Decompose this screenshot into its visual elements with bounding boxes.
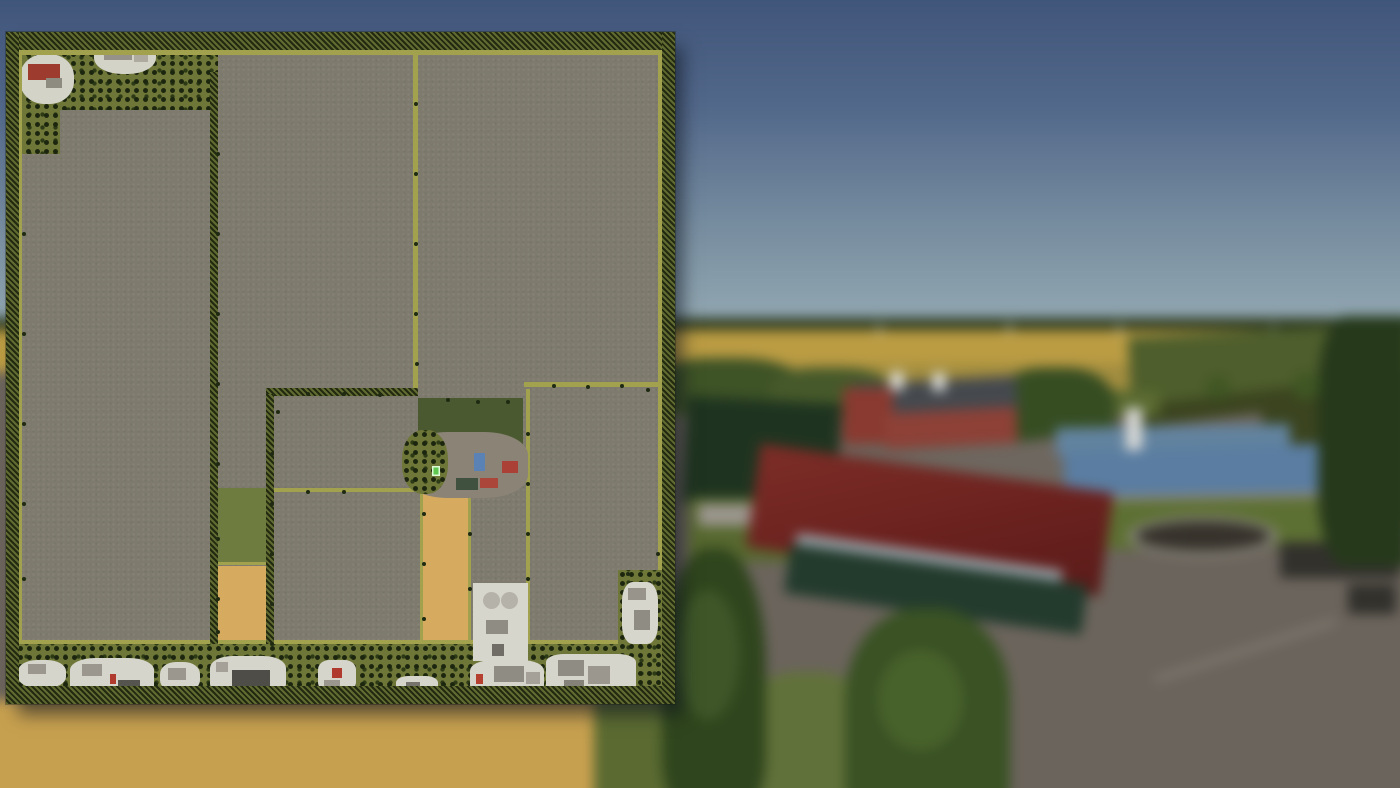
map-tree-dot <box>378 393 382 397</box>
map-tree-dot <box>414 102 418 106</box>
barn-side-wall <box>884 407 1018 450</box>
map-tree-dot <box>414 172 418 176</box>
map-farmyard-marker <box>432 466 440 476</box>
map-silo-yard-shed <box>486 620 508 634</box>
map-silo-1 <box>483 592 500 609</box>
minimap-panel <box>6 32 675 704</box>
map-tree-dot <box>270 552 274 556</box>
wind-turbine-3 <box>1118 324 1121 334</box>
map-tree-dot <box>422 617 426 621</box>
map-tree-dot <box>342 490 346 494</box>
map-tree-dot <box>216 152 220 156</box>
map-margin-field-bc <box>413 50 418 388</box>
map-bottom-yard-7-shed <box>494 666 524 682</box>
map-margin-center-right <box>468 492 471 642</box>
map-hedge-ring-right <box>662 32 675 704</box>
map-tree-dot <box>216 382 220 386</box>
map-bottom-yard-8-shed <box>558 660 584 676</box>
map-tree-dot <box>414 312 418 316</box>
map-tree-dot <box>22 232 26 236</box>
wind-turbine-1 <box>878 324 881 334</box>
feed-chimney <box>1126 408 1142 452</box>
right-small-tree-1 <box>1292 372 1320 400</box>
map-margin-top <box>18 50 664 55</box>
map-farmyard-trees <box>402 430 448 494</box>
map-silo-yard-dark-shed <box>492 644 504 656</box>
map-farmstead-nw-shed <box>46 78 62 88</box>
map-farmyard-green-shed <box>456 478 478 490</box>
barn-roof-vent-1 <box>891 372 903 390</box>
map-bottom-yard-3-shed <box>168 668 186 680</box>
map-bottom-yard-2-shed <box>82 664 102 676</box>
map-tree-dot <box>270 602 274 606</box>
map-tree-dot <box>22 422 26 426</box>
map-bottom-yard-7-shed-2 <box>526 672 540 684</box>
map-bottom-yard-5-red-shed <box>332 668 342 678</box>
map-tree-dot <box>552 384 556 388</box>
map-bottom-yard-8-shed-2 <box>588 666 610 684</box>
map-bottom-yard-1-shed <box>28 664 46 674</box>
map-tree-dot <box>468 587 472 591</box>
map-corner-shed-se-1 <box>628 588 646 600</box>
map-corner-shed-se-2 <box>634 610 650 630</box>
map-silo-2 <box>501 592 518 609</box>
foreground-tree-2-highlight <box>878 650 963 750</box>
map-margin-green-yellow <box>212 562 270 565</box>
map-yellow-field-west <box>214 566 268 646</box>
map-tree-dot <box>342 392 346 396</box>
map-tree-dot <box>414 242 418 246</box>
barn-roof-vent-2 <box>933 373 945 391</box>
map-farmyard-blue-container <box>474 453 485 471</box>
map-tree-dot <box>646 388 650 392</box>
map-tree-dot <box>306 490 310 494</box>
map-tree-dot <box>270 452 274 456</box>
map-tree-dot <box>526 432 530 436</box>
map-tree-dot <box>216 630 220 634</box>
map-tree-dot <box>22 502 26 506</box>
bottom-left-crop-field <box>0 700 594 788</box>
map-green-pasture <box>212 488 270 564</box>
slurry-pit <box>1136 521 1270 551</box>
map-tree-dot <box>526 577 530 581</box>
map-hedge-vertical-1 <box>210 72 218 644</box>
pallet-single <box>1348 584 1396 614</box>
map-bottom-yard-2-red-door <box>110 674 116 684</box>
map-yellow-field-center <box>423 493 471 651</box>
map-bottom-yard-7-red-door <box>476 674 483 684</box>
map-tree-dot <box>626 572 630 576</box>
map-tree-dot <box>216 312 220 316</box>
map-tree-dot <box>216 537 220 541</box>
map-tree-dot <box>270 502 274 506</box>
map-tree-dot <box>306 392 310 396</box>
map-tree-dot <box>216 597 220 601</box>
map-tree-dot <box>216 462 220 466</box>
map-tree-dot <box>586 385 590 389</box>
map-tree-dot <box>415 362 419 366</box>
map-tree-dot <box>446 398 450 402</box>
map-margin-field-c-bottom <box>524 382 664 387</box>
map-tree-dot <box>422 562 426 566</box>
map-tree-dot <box>276 410 280 414</box>
game-screenshot-stage <box>0 0 1400 788</box>
map-bottom-yard-4-shed <box>216 662 228 672</box>
map-farmyard-red-shed <box>502 461 518 473</box>
map-tree-dot <box>422 512 426 516</box>
map-tree-dot <box>270 642 274 646</box>
map-tree-dot <box>526 532 530 536</box>
map-farmyard-red-container <box>480 478 498 488</box>
map-tree-dot <box>216 232 220 236</box>
map-tree-dot <box>656 552 660 556</box>
map-tree-dot <box>476 400 480 404</box>
map-tree-dot <box>468 532 472 536</box>
map-hedge-ring-top <box>6 32 675 50</box>
foreground-tree-1-highlight <box>676 590 740 720</box>
right-small-tree-2 <box>1206 376 1230 400</box>
map-tree-dot <box>620 384 624 388</box>
map-tree-dot <box>22 332 26 336</box>
map-tree-dot <box>506 400 510 404</box>
map-tree-dot <box>526 482 530 486</box>
right-edge-trees <box>1318 316 1400 566</box>
map-tree-dot <box>22 577 26 581</box>
map-hedge-ring-bottom <box>6 686 675 704</box>
map-hedge-ring-left <box>6 32 19 704</box>
wind-turbine-2 <box>1008 323 1011 333</box>
